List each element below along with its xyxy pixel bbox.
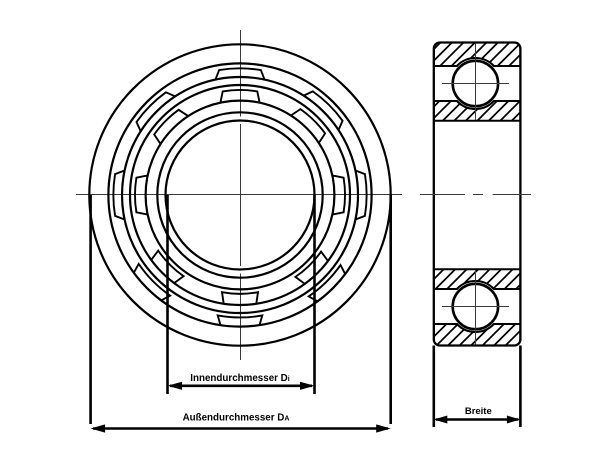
svg-text:Außendurchmesser DA: Außendurchmesser DA [183, 412, 290, 423]
svg-text:Breite: Breite [465, 406, 492, 417]
svg-text:Innendurchmesser Di: Innendurchmesser Di [190, 373, 289, 384]
